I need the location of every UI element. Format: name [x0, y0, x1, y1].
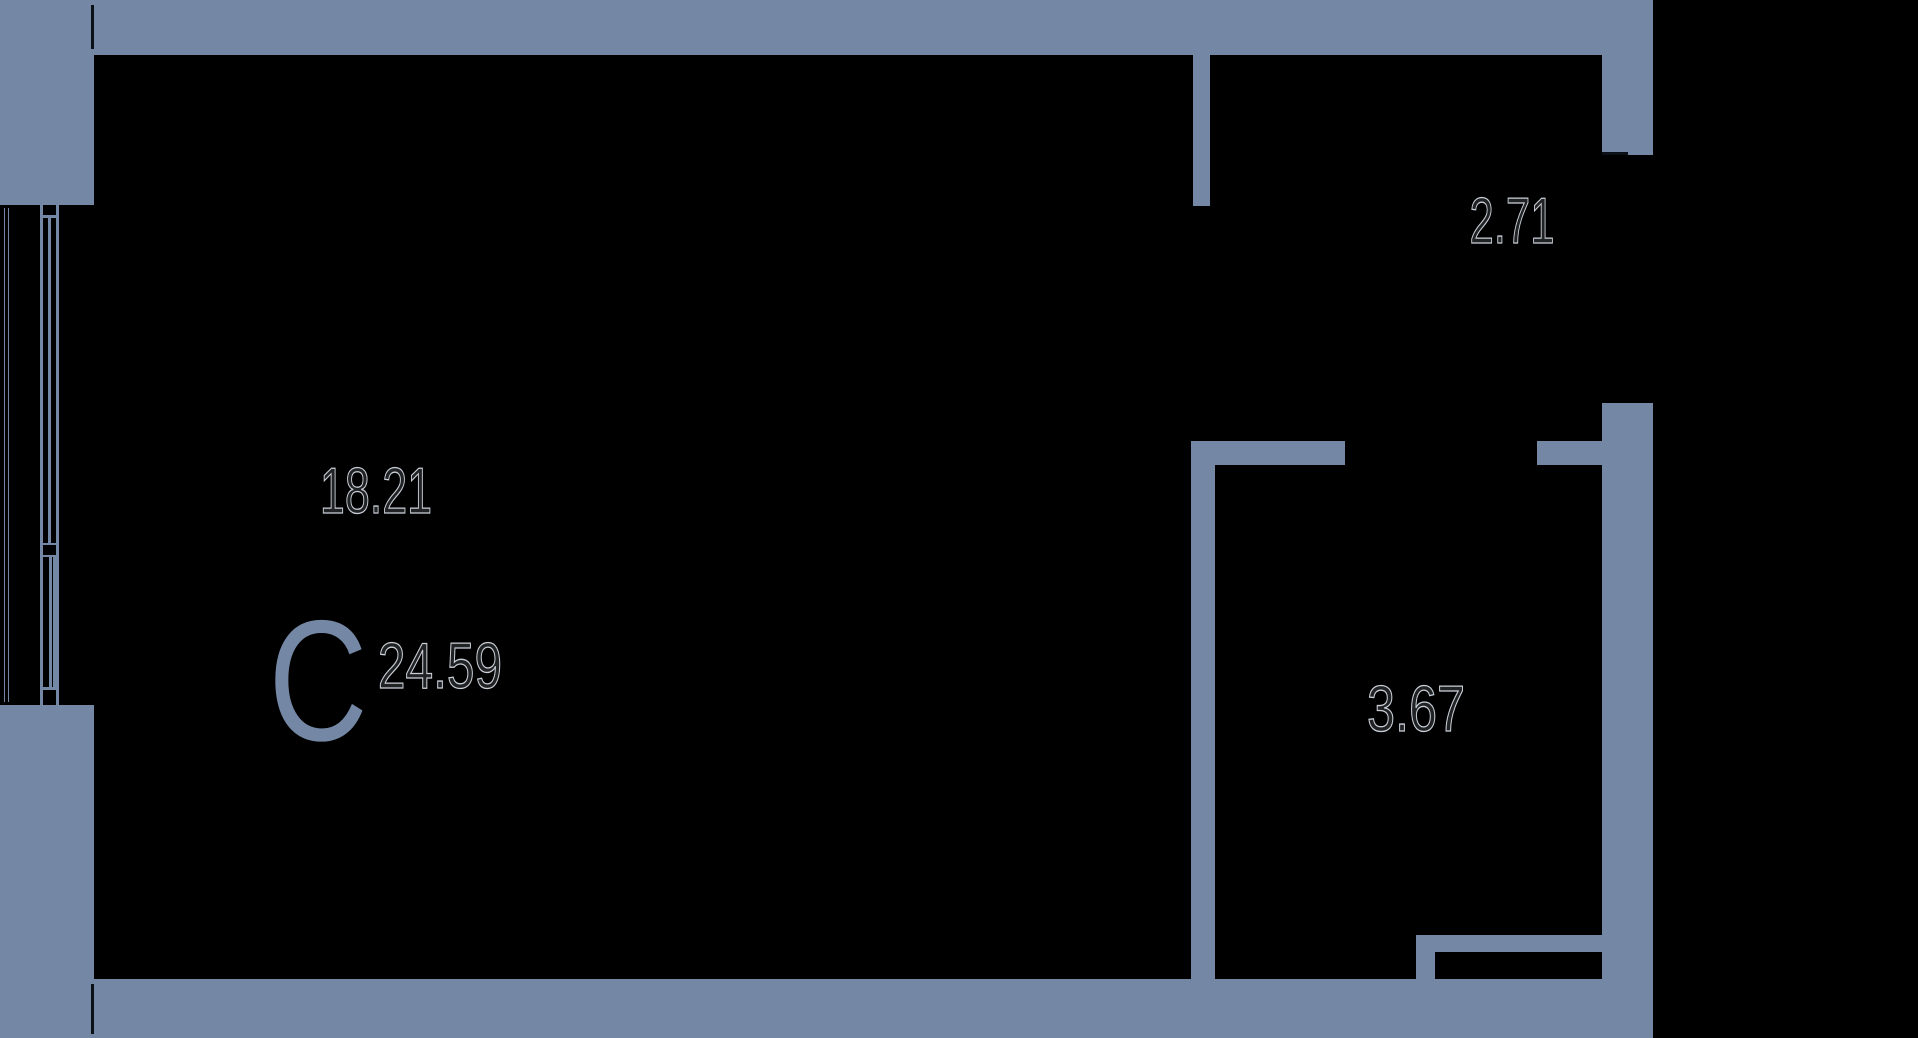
wall-niche-vertical: [1416, 935, 1435, 979]
wall-left-lower: [0, 705, 94, 1038]
window-step-bottom: [43, 687, 56, 690]
window-frame-left-line: [40, 197, 43, 713]
area-label-main-room: 18.21: [307, 458, 445, 523]
floor-plan: С 18.21 24.59 2.71 3.67: [0, 0, 1918, 1038]
wall-niche-horizontal: [1435, 935, 1611, 952]
window-sash-line-lower-1: [49, 557, 52, 690]
wall-bathroom-top-right: [1537, 441, 1602, 465]
window-sash-line-upper: [48, 218, 51, 543]
wall-bottom: [94, 979, 1653, 1038]
wall-partition-loggia: [1193, 55, 1210, 206]
wall-top: [0, 0, 1653, 55]
window-frame-right-line: [56, 197, 59, 713]
wall-seam-right-upper: [1602, 152, 1628, 155]
area-label-loggia: 2.71: [1445, 188, 1579, 253]
window-sash-line-lower-2: [53, 557, 56, 690]
window-mid-junction: [41, 543, 58, 557]
wall-seam-top-left: [91, 5, 94, 49]
window-cap-bottom: [40, 710, 59, 713]
window-cap-top: [40, 197, 59, 200]
area-label-total: 24.59: [364, 633, 517, 698]
area-label-bathroom: 3.67: [1339, 676, 1494, 741]
window-outer-glass-line: [4, 208, 9, 702]
wall-bathroom-partition: [1191, 464, 1215, 979]
wall-right-upper: [1602, 55, 1653, 155]
wall-seam-bottom-left: [91, 984, 94, 1034]
wall-left-upper: [0, 0, 94, 205]
wall-bathroom-top-left: [1191, 441, 1345, 465]
